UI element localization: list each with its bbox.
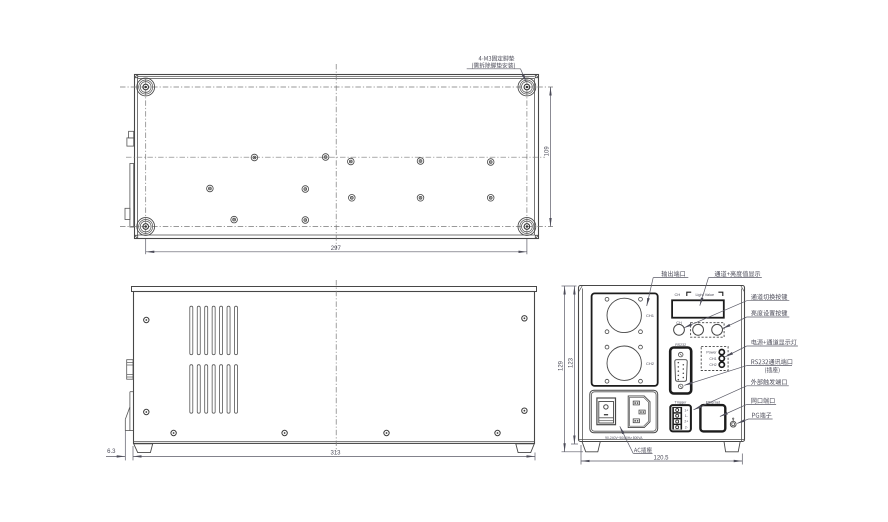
svg-text:123: 123 [568, 357, 574, 368]
svg-text:CH2: CH2 [646, 361, 655, 366]
svg-text:CH1: CH1 [646, 313, 655, 318]
svg-text:CH: CH [675, 292, 681, 297]
svg-text:129: 129 [559, 360, 565, 371]
svg-text:Power: Power [706, 351, 717, 355]
svg-text:CH1: CH1 [709, 357, 716, 361]
svg-text:2+: 2+ [684, 420, 688, 424]
svg-text:120.5: 120.5 [653, 455, 669, 461]
svg-text:1+: 1+ [684, 408, 688, 412]
svg-text:297: 297 [331, 246, 342, 252]
svg-text:Light Value: Light Value [695, 293, 714, 297]
svg-text:1-: 1- [685, 414, 688, 418]
svg-text:90-240V~50/60Hz 800VA: 90-240V~50/60Hz 800VA [605, 436, 643, 440]
svg-text:109: 109 [545, 146, 551, 157]
svg-text:313: 313 [330, 451, 341, 457]
svg-text:CH2: CH2 [709, 363, 716, 367]
svg-text:Trigger: Trigger [675, 401, 688, 405]
svg-text:2-: 2- [685, 425, 688, 429]
svg-text:6.3: 6.3 [107, 449, 116, 455]
